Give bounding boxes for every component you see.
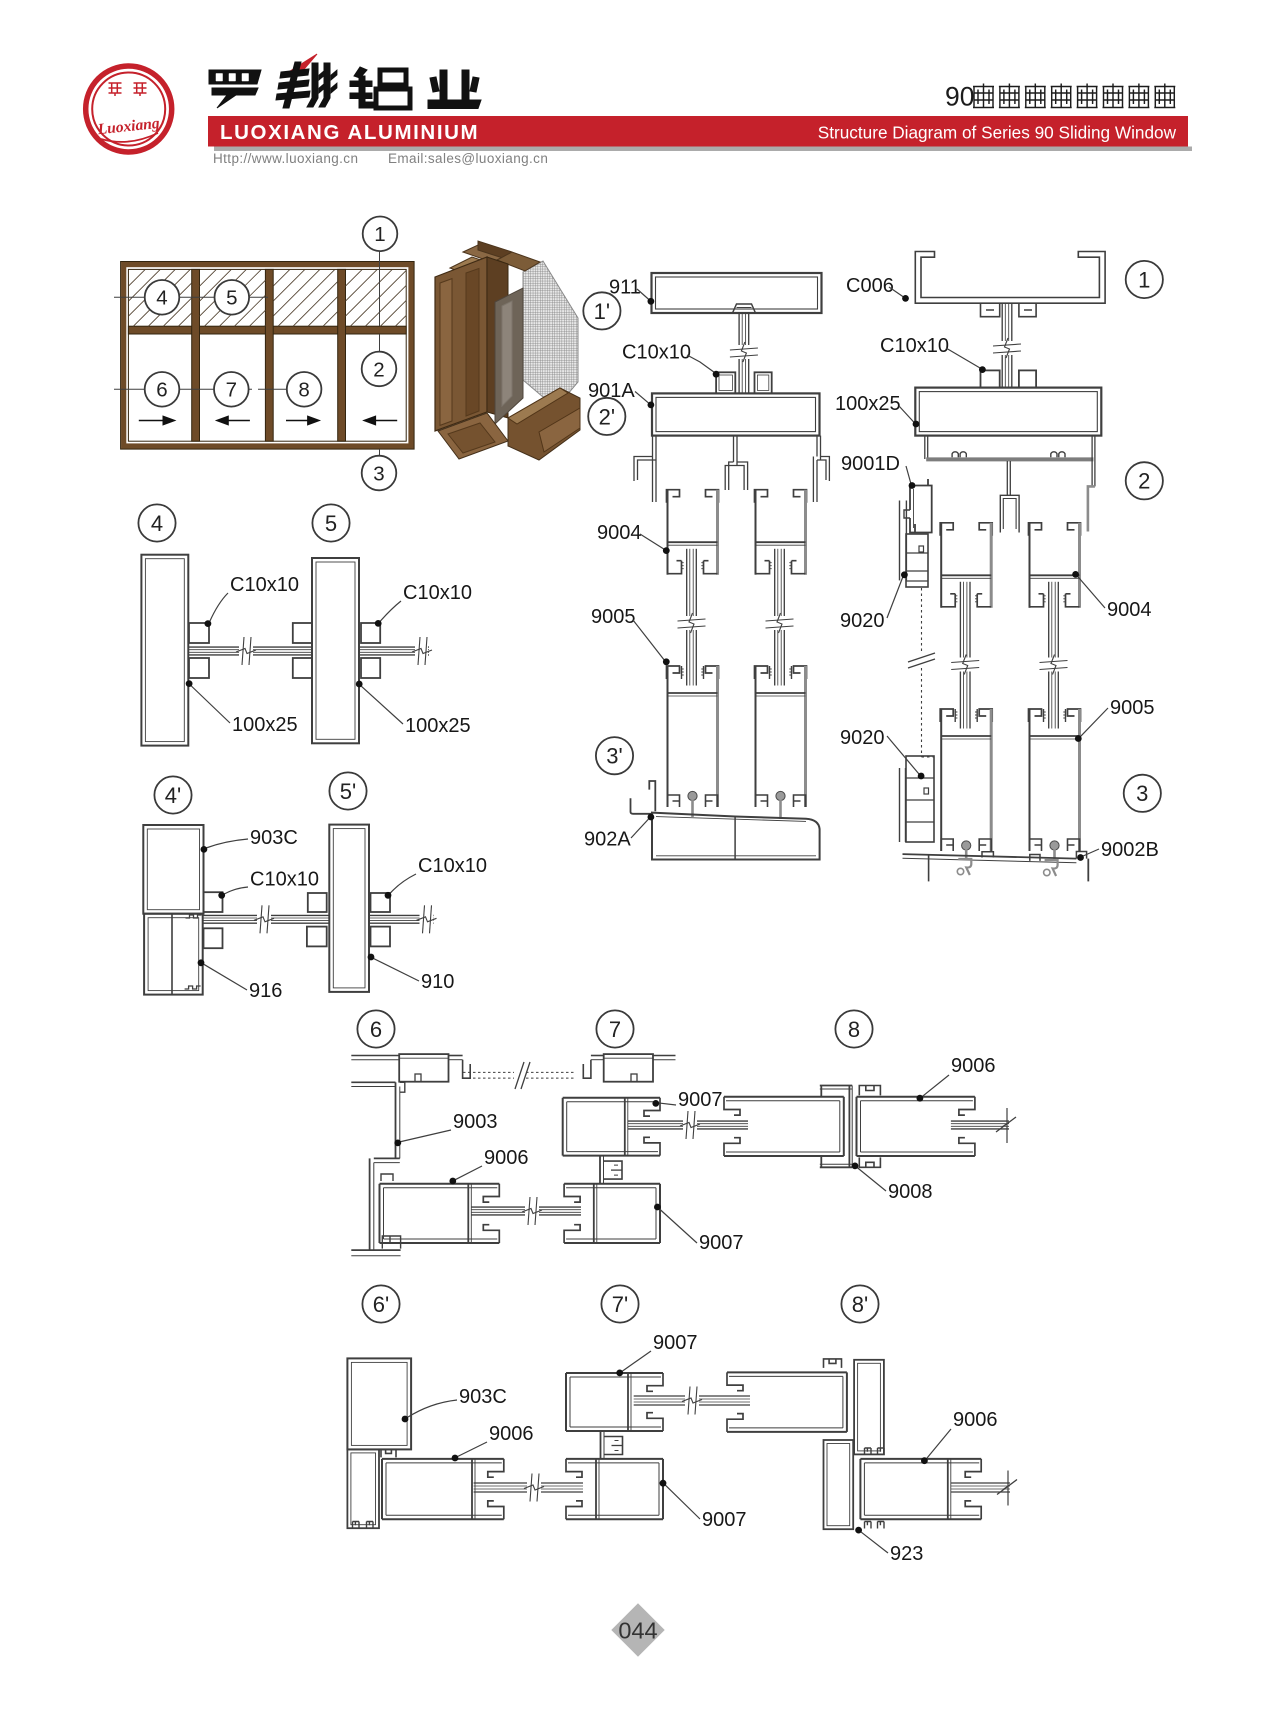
svg-text:9004: 9004 bbox=[597, 522, 642, 544]
svg-text:Structure Diagram of Series 90: Structure Diagram of Series 90 Sliding W… bbox=[818, 123, 1177, 143]
svg-text:4': 4' bbox=[165, 783, 181, 808]
svg-text:C006: C006 bbox=[846, 275, 894, 297]
svg-text:100x25: 100x25 bbox=[405, 715, 471, 737]
svg-text:903C: 903C bbox=[250, 827, 298, 849]
svg-text:902A: 902A bbox=[584, 829, 631, 851]
svg-text:6': 6' bbox=[373, 1292, 389, 1317]
svg-text:9003: 9003 bbox=[453, 1111, 498, 1133]
svg-text:9007: 9007 bbox=[653, 1332, 698, 1354]
svg-text:9007: 9007 bbox=[702, 1509, 747, 1531]
svg-text:7: 7 bbox=[226, 379, 237, 402]
svg-text:9006: 9006 bbox=[489, 1423, 534, 1445]
svg-text:5: 5 bbox=[325, 511, 337, 536]
svg-text:1: 1 bbox=[374, 223, 385, 246]
svg-text:9007: 9007 bbox=[699, 1232, 744, 1254]
svg-text:9007: 9007 bbox=[678, 1089, 723, 1111]
svg-text:4: 4 bbox=[151, 511, 163, 536]
svg-text:C10x10: C10x10 bbox=[418, 855, 487, 877]
svg-text:C10x10: C10x10 bbox=[403, 582, 472, 604]
svg-text:90: 90 bbox=[945, 82, 974, 112]
svg-text:C10x10: C10x10 bbox=[250, 869, 319, 891]
svg-text:901A: 901A bbox=[588, 380, 635, 402]
svg-text:C10x10: C10x10 bbox=[880, 335, 949, 357]
svg-text:8: 8 bbox=[298, 379, 309, 402]
svg-text:6: 6 bbox=[370, 1017, 382, 1042]
svg-text:2: 2 bbox=[373, 358, 384, 381]
svg-text:9020: 9020 bbox=[840, 610, 885, 632]
svg-text:903C: 903C bbox=[459, 1386, 507, 1408]
svg-text:Email:sales@luoxiang.cn: Email:sales@luoxiang.cn bbox=[388, 151, 548, 166]
svg-text:3: 3 bbox=[373, 462, 384, 485]
svg-text:8: 8 bbox=[848, 1017, 860, 1042]
svg-text:C10x10: C10x10 bbox=[622, 342, 691, 364]
svg-text:9005: 9005 bbox=[1110, 697, 1155, 719]
svg-text:9005: 9005 bbox=[591, 606, 636, 628]
svg-text:7: 7 bbox=[609, 1017, 621, 1042]
svg-text:3: 3 bbox=[1136, 781, 1148, 806]
svg-text:9008: 9008 bbox=[888, 1181, 933, 1203]
svg-text:100x25: 100x25 bbox=[835, 393, 901, 415]
svg-text:916: 916 bbox=[249, 980, 282, 1002]
svg-text:9006: 9006 bbox=[484, 1147, 529, 1169]
svg-text:7': 7' bbox=[612, 1292, 628, 1317]
svg-text:C10x10: C10x10 bbox=[230, 574, 299, 596]
svg-text:044: 044 bbox=[618, 1618, 657, 1644]
svg-text:100x25: 100x25 bbox=[232, 714, 298, 736]
svg-text:9006: 9006 bbox=[953, 1409, 998, 1431]
svg-text:9006: 9006 bbox=[951, 1055, 996, 1077]
svg-text:911: 911 bbox=[609, 277, 641, 299]
svg-text:9001D: 9001D bbox=[841, 453, 900, 475]
svg-text:923: 923 bbox=[890, 1543, 923, 1565]
svg-text:910: 910 bbox=[421, 971, 454, 993]
svg-text:5': 5' bbox=[340, 779, 356, 804]
svg-text:2': 2' bbox=[599, 404, 615, 429]
svg-text:9004: 9004 bbox=[1107, 599, 1152, 621]
svg-text:9020: 9020 bbox=[840, 727, 885, 749]
svg-text:LUOXIANG ALUMINIUM: LUOXIANG ALUMINIUM bbox=[220, 121, 479, 144]
svg-text:3': 3' bbox=[606, 744, 622, 769]
svg-text:2: 2 bbox=[1138, 469, 1150, 494]
svg-text:1: 1 bbox=[1138, 267, 1150, 292]
svg-text:4: 4 bbox=[156, 287, 167, 310]
svg-text:6: 6 bbox=[156, 379, 167, 402]
svg-text:8': 8' bbox=[852, 1292, 868, 1317]
svg-text:Http://www.luoxiang.cn: Http://www.luoxiang.cn bbox=[213, 151, 358, 166]
svg-text:5: 5 bbox=[226, 287, 237, 310]
svg-text:9002B: 9002B bbox=[1101, 839, 1159, 861]
svg-text:1': 1' bbox=[594, 299, 610, 324]
